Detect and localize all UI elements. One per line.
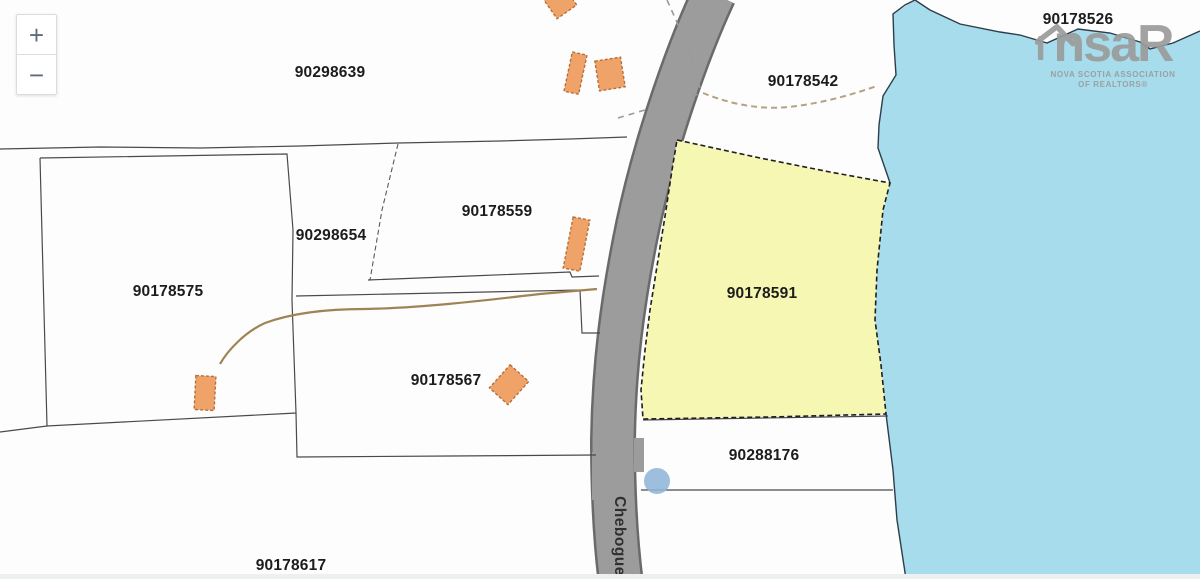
parcel-label-90178567: 90178567 (411, 372, 482, 389)
parcel-label-90298639: 90298639 (295, 64, 366, 81)
building-footprint (564, 52, 587, 94)
zoom-out-button[interactable]: − (16, 54, 57, 95)
parcel-label-90288176: 90288176 (729, 447, 800, 464)
parcel-label-90178526: 90178526 (1043, 11, 1114, 28)
zoom-controls: + − (16, 14, 57, 95)
boundary-north (0, 137, 627, 149)
building-footprint (595, 57, 625, 91)
road-shoulder (634, 438, 644, 472)
parcel-90178591-highlighted[interactable] (641, 140, 890, 419)
boundary-90298654-east (370, 144, 398, 280)
parcel-label-90178575: 90178575 (133, 283, 204, 300)
boundary-90178567-north (296, 290, 600, 333)
parcel-label-90178591: 90178591 (727, 285, 798, 302)
parcel-label-90178542: 90178542 (768, 73, 839, 90)
parcel-label-90178617: 90178617 (256, 557, 327, 574)
building-footprint (543, 0, 576, 19)
boundary-90178559-south (368, 272, 599, 280)
building-footprint (489, 365, 528, 405)
parcel-label-90178559: 90178559 (462, 203, 533, 220)
road-shoulder (592, 452, 602, 500)
boundary-90178567-west-south (296, 413, 596, 457)
poi-dot (644, 468, 670, 494)
map-viewport[interactable]: 90298639 90178542 90178526 90178559 9029… (0, 0, 1200, 579)
driveway-line (220, 289, 597, 364)
parcel-label-90298654: 90298654 (296, 227, 367, 244)
map-canvas[interactable]: 90298639 90178542 90178526 90178559 9029… (0, 0, 1200, 579)
water-body (875, 0, 1200, 579)
road-label-chebogue: Chebogue (611, 496, 628, 576)
map-edge (0, 574, 1200, 579)
boundary-southwest (0, 426, 47, 432)
building-footprint (563, 217, 590, 271)
zoom-in-button[interactable]: + (16, 14, 57, 55)
building-footprint (194, 375, 216, 410)
